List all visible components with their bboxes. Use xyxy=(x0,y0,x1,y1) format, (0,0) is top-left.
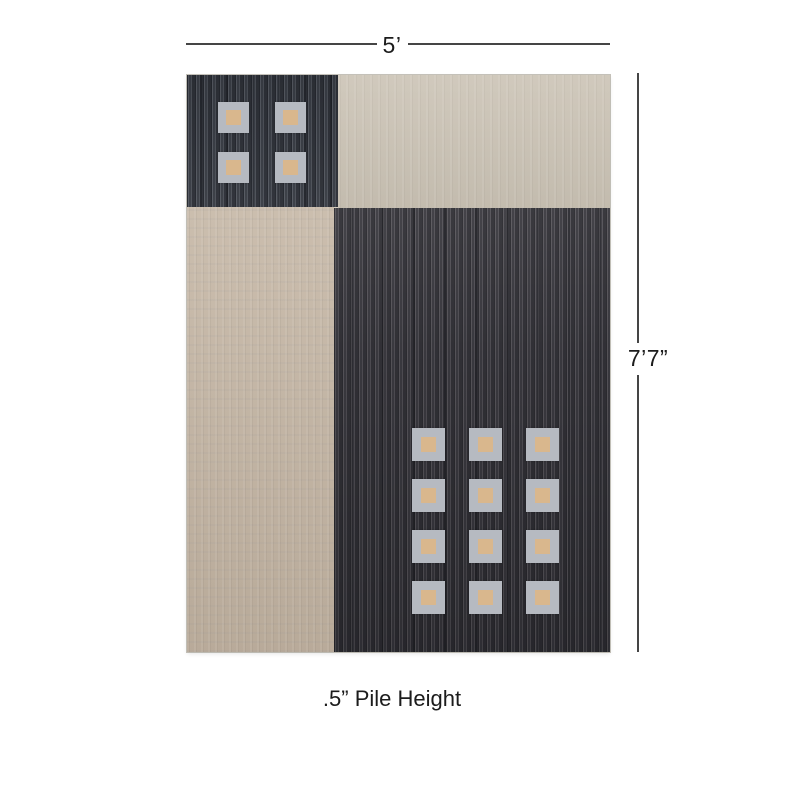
rug-block-main-charcoal xyxy=(334,208,610,652)
rug-block-left-beige xyxy=(187,207,334,652)
pattern-square-inner xyxy=(535,437,550,452)
pattern-square-inner xyxy=(535,488,550,503)
height-dimension-label: 7’7” xyxy=(620,346,676,371)
pattern-square xyxy=(526,530,559,563)
pattern-square-inner xyxy=(421,590,436,605)
pattern-square xyxy=(412,530,445,563)
pattern-square xyxy=(275,152,306,183)
pattern-square xyxy=(412,428,445,461)
square-grid-main xyxy=(412,428,559,614)
pattern-square xyxy=(218,152,249,183)
rug-block-top-left-charcoal xyxy=(187,75,338,207)
pattern-square xyxy=(218,102,249,133)
width-dimension-label: 5’ xyxy=(372,33,412,58)
pattern-square-inner xyxy=(421,539,436,554)
pattern-square xyxy=(526,428,559,461)
pattern-square-inner xyxy=(226,160,241,175)
pattern-square-inner xyxy=(478,437,493,452)
pattern-square xyxy=(526,581,559,614)
width-dimension-line-right xyxy=(408,43,610,45)
rug-photo xyxy=(187,75,610,652)
square-grid-top-left xyxy=(218,102,306,183)
pattern-square xyxy=(412,479,445,512)
height-dimension-line-top xyxy=(637,73,639,343)
pattern-square-inner xyxy=(478,539,493,554)
pattern-square xyxy=(275,102,306,133)
pattern-square-inner xyxy=(283,160,298,175)
width-dimension-line-left xyxy=(186,43,377,45)
pattern-square-inner xyxy=(535,590,550,605)
pattern-square xyxy=(526,479,559,512)
pattern-square-inner xyxy=(478,590,493,605)
pattern-square-inner xyxy=(226,110,241,125)
height-dimension-line-bottom xyxy=(637,375,639,652)
pattern-square xyxy=(469,479,502,512)
pattern-square xyxy=(412,581,445,614)
pile-height-label: .5” Pile Height xyxy=(272,686,512,712)
pattern-square-inner xyxy=(478,488,493,503)
rug-block-top-right-beige xyxy=(338,75,610,208)
pattern-square-inner xyxy=(283,110,298,125)
pattern-square-inner xyxy=(535,539,550,554)
pattern-square-inner xyxy=(421,437,436,452)
pattern-square xyxy=(469,581,502,614)
product-dimension-image: 5’ 7’7” .5” Pile Height xyxy=(0,0,800,800)
pattern-square-inner xyxy=(421,488,436,503)
pattern-square xyxy=(469,428,502,461)
pattern-square xyxy=(469,530,502,563)
